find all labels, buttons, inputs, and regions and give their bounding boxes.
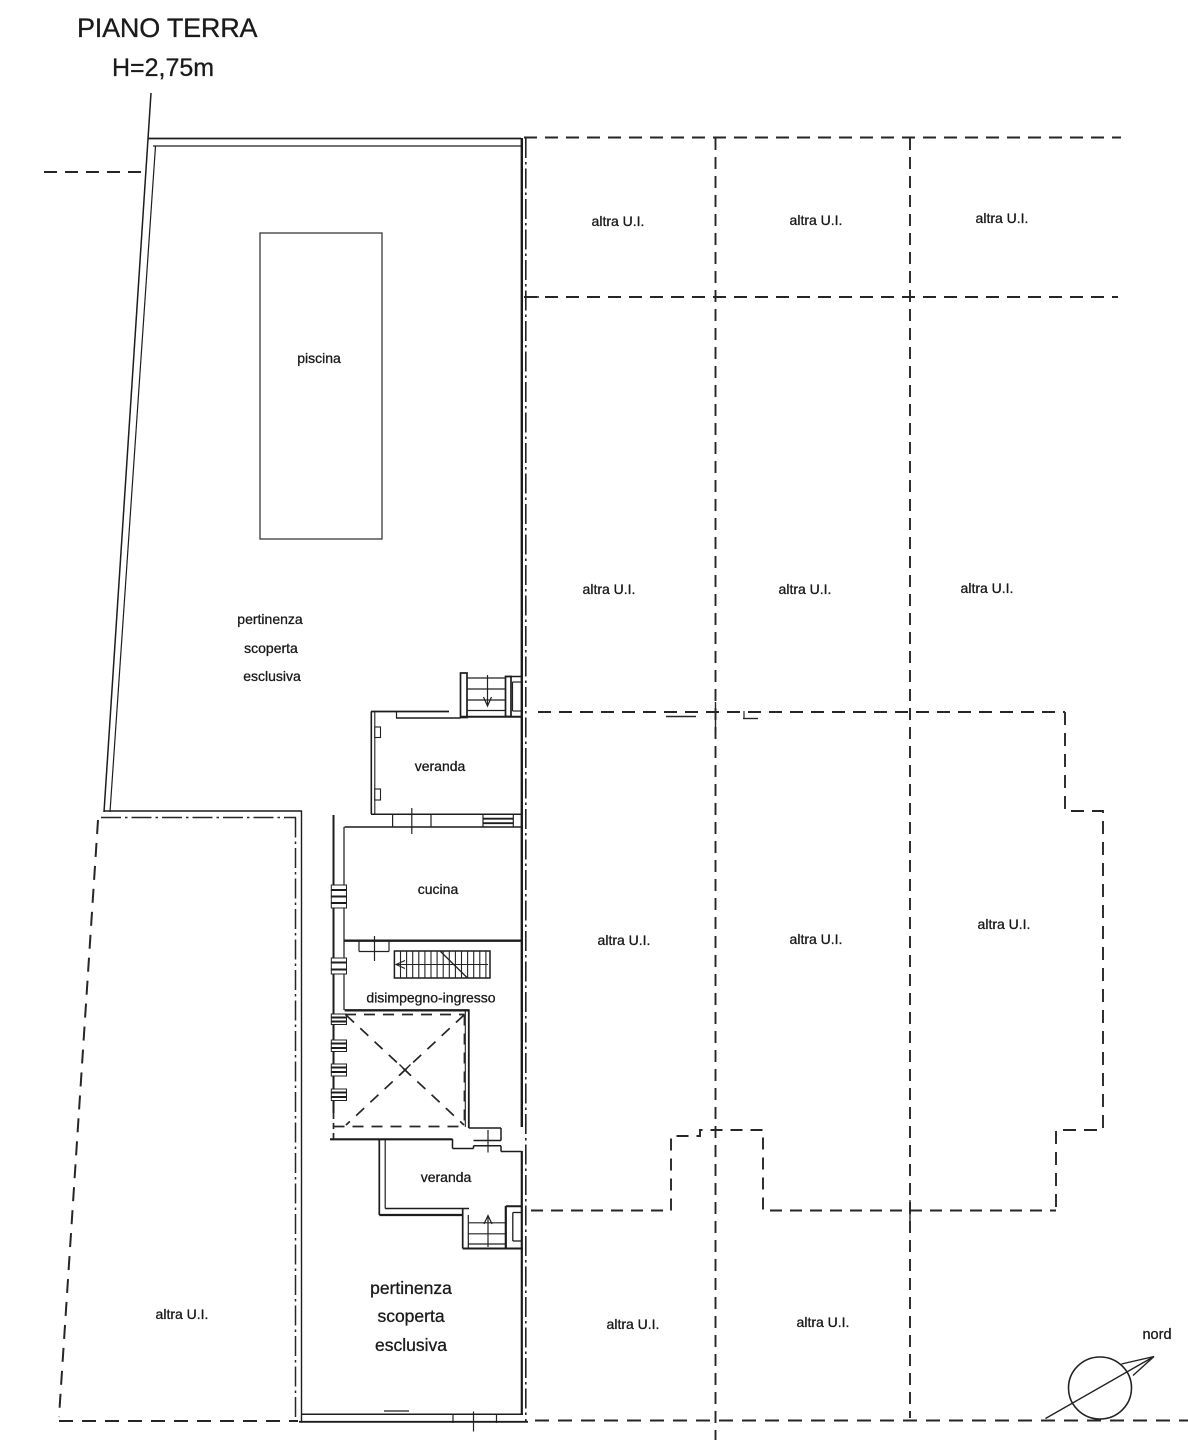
svg-text:altra U.I.: altra U.I.: [598, 932, 651, 948]
svg-text:altra U.I.: altra U.I.: [790, 212, 843, 228]
svg-text:esclusiva: esclusiva: [243, 668, 301, 684]
svg-text:pertinenza: pertinenza: [237, 611, 303, 627]
svg-text:altra U.I.: altra U.I.: [779, 581, 832, 597]
svg-text:altra U.I.: altra U.I.: [607, 1316, 660, 1332]
svg-text:pertinenza: pertinenza: [370, 1278, 452, 1298]
svg-text:esclusiva: esclusiva: [375, 1335, 447, 1355]
svg-text:H=2,75m: H=2,75m: [112, 54, 214, 82]
svg-text:altra U.I.: altra U.I.: [156, 1306, 209, 1322]
svg-text:veranda: veranda: [421, 1169, 472, 1185]
svg-text:piscina: piscina: [297, 350, 341, 366]
svg-text:nord: nord: [1142, 1327, 1171, 1343]
svg-text:altra U.I.: altra U.I.: [976, 210, 1029, 226]
svg-text:altra U.I.: altra U.I.: [790, 931, 843, 947]
svg-text:altra U.I.: altra U.I.: [978, 916, 1031, 932]
svg-text:disimpegno-ingresso: disimpegno-ingresso: [366, 990, 495, 1006]
svg-text:cucina: cucina: [418, 881, 459, 897]
svg-text:altra U.I.: altra U.I.: [961, 580, 1014, 596]
svg-text:scoperta: scoperta: [244, 640, 298, 656]
svg-text:veranda: veranda: [415, 758, 466, 774]
svg-text:scoperta: scoperta: [377, 1306, 444, 1326]
svg-text:PIANO TERRA: PIANO TERRA: [77, 13, 258, 43]
svg-text:altra U.I.: altra U.I.: [797, 1314, 850, 1330]
svg-text:altra U.I.: altra U.I.: [592, 213, 645, 229]
svg-text:altra U.I.: altra U.I.: [583, 581, 636, 597]
